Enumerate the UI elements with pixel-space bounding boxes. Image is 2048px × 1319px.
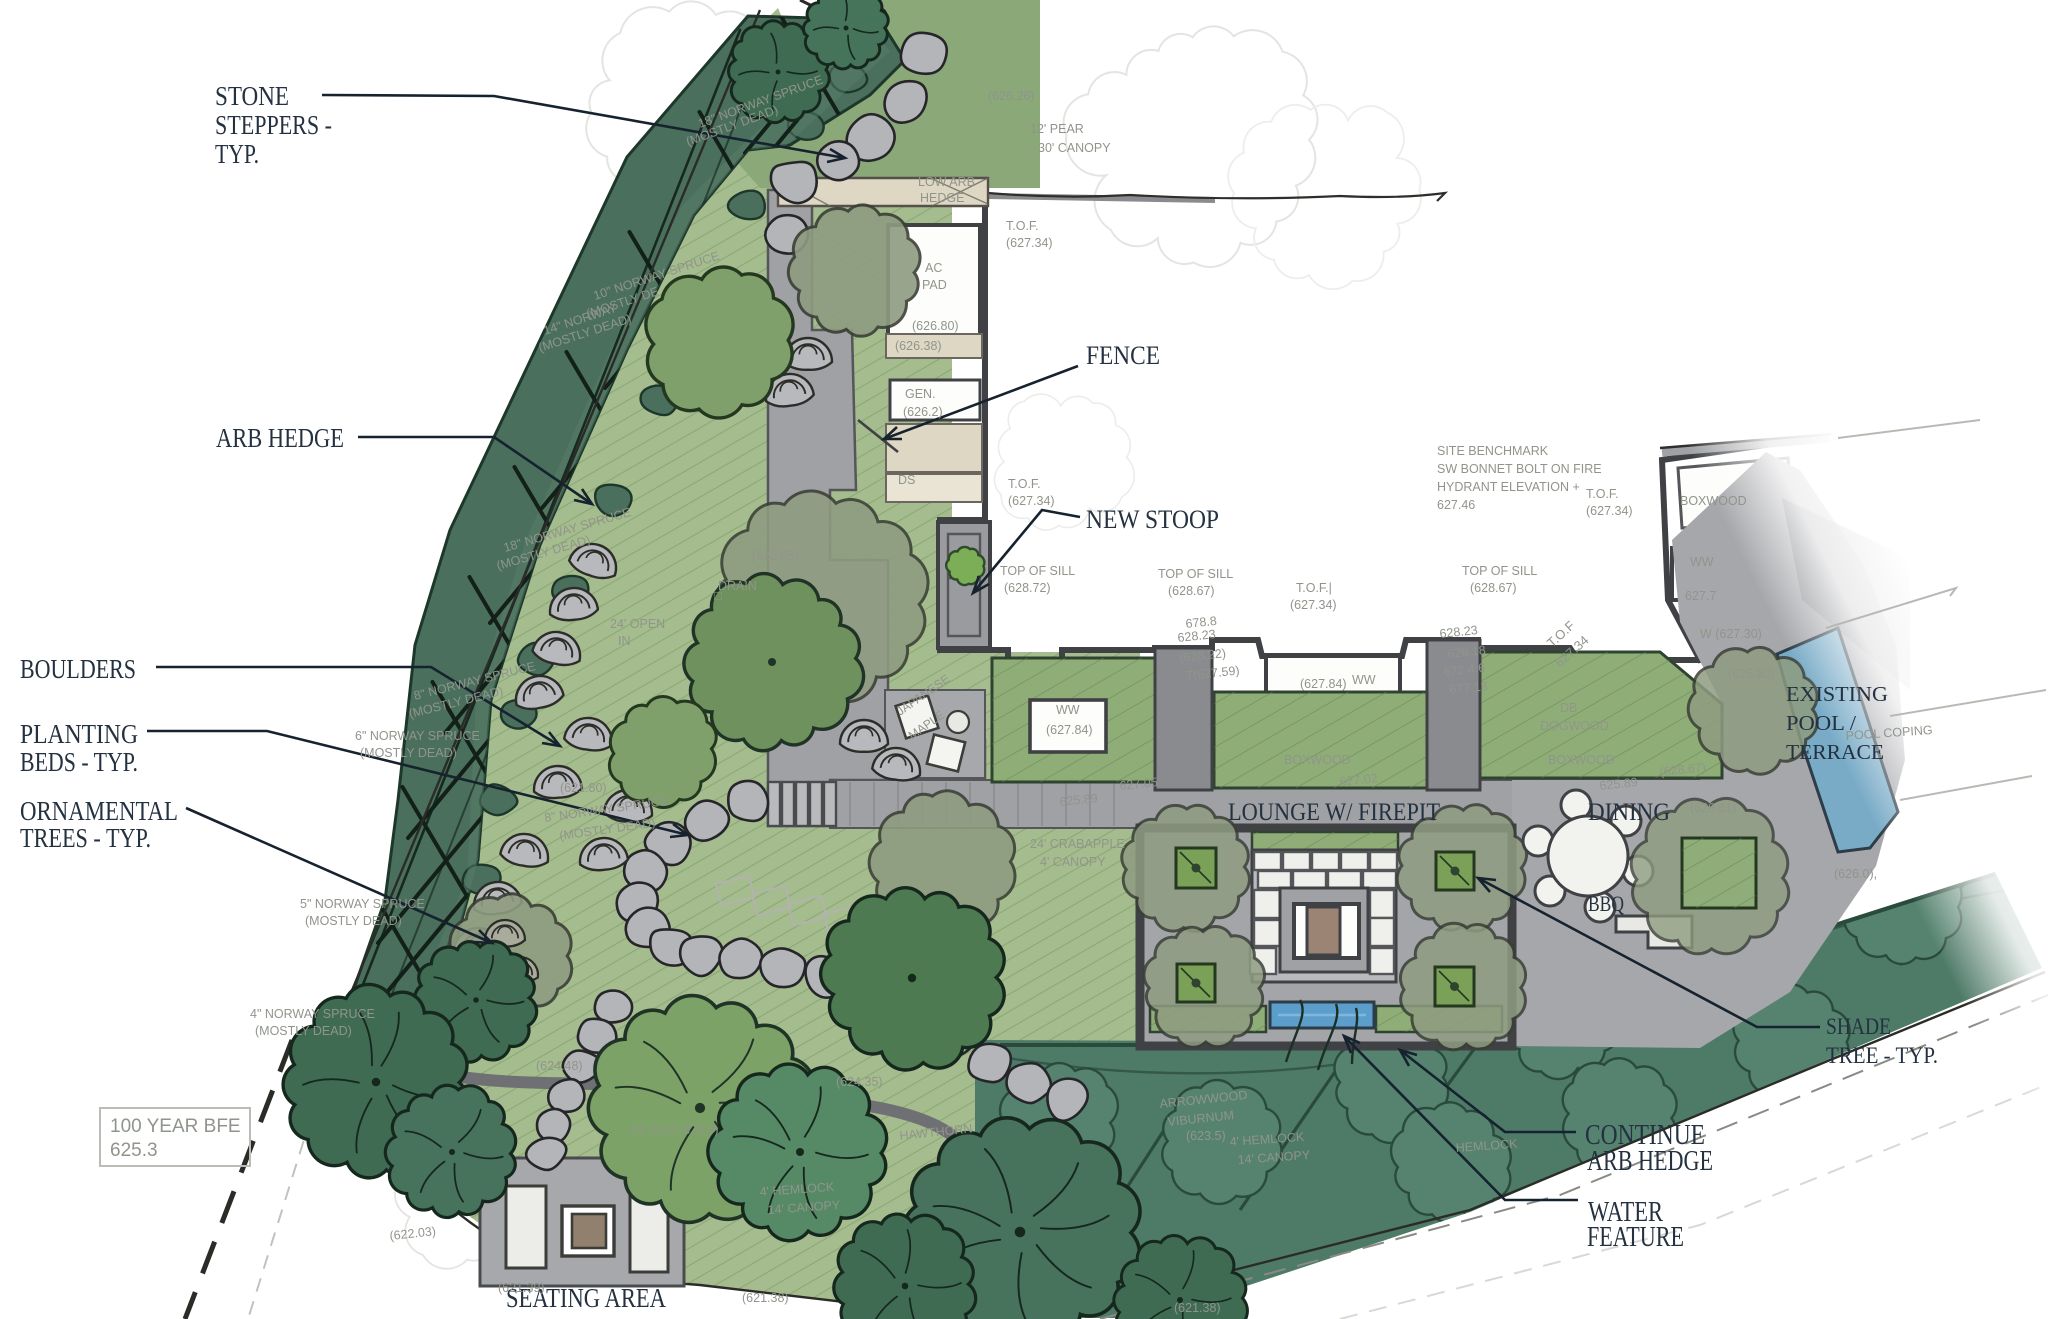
svg-text:BBQ: BBQ: [1588, 891, 1624, 916]
svg-text:SITE BENCHMARK: SITE BENCHMARK: [1437, 444, 1549, 458]
svg-text:DINING: DINING: [1588, 799, 1670, 826]
svg-text:T.O.F.: T.O.F.: [1008, 477, 1041, 491]
svg-text:(623.5): (623.5): [1186, 1129, 1226, 1143]
svg-text:TOP OF SILL: TOP OF SILL: [1462, 564, 1537, 578]
svg-text:WW: WW: [1690, 555, 1714, 569]
svg-text:TOP OF SILL: TOP OF SILL: [1158, 567, 1233, 581]
svg-text:(626.0),: (626.0),: [1834, 867, 1877, 881]
svg-text:BOULDERS: BOULDERS: [20, 654, 136, 684]
svg-text:5" NORWAY SPRUCE: 5" NORWAY SPRUCE: [300, 897, 425, 911]
svg-text:W (627.30): W (627.30): [1700, 627, 1762, 641]
svg-text:(622.05): (622.05): [752, 549, 799, 563]
svg-text:(626.2): (626.2): [903, 405, 943, 419]
svg-text:AC: AC: [925, 261, 942, 275]
svg-text:BEDS - TYP.: BEDS - TYP.: [20, 747, 138, 777]
svg-text:(626.80): (626.80): [912, 319, 959, 333]
svg-text:SHADE: SHADE: [1826, 1014, 1891, 1039]
svg-text:4" NORWAY SPRUCE: 4" NORWAY SPRUCE: [250, 1007, 375, 1021]
svg-text:625.3: 625.3: [110, 1140, 158, 1161]
svg-text:ARB HEDGE: ARB HEDGE: [216, 423, 344, 453]
svg-text:HEDGE: HEDGE: [920, 191, 964, 205]
svg-text:(628.72): (628.72): [1004, 581, 1051, 595]
svg-text:STEPPERS -: STEPPERS -: [215, 110, 332, 140]
svg-text:WW: WW: [1352, 673, 1376, 687]
svg-text:(627.84): (627.84): [1046, 723, 1093, 737]
svg-text:30' CANOPY: 30' CANOPY: [1038, 141, 1111, 155]
svg-text:BOXWOOD: BOXWOOD: [1548, 753, 1615, 767]
svg-text:(621.39): (621.39): [498, 1281, 545, 1295]
svg-text:(627.34): (627.34): [1586, 504, 1633, 518]
svg-text:(627.34): (627.34): [1290, 598, 1337, 612]
svg-text:(MOSTLY DEAD): (MOSTLY DEAD): [305, 914, 402, 928]
svg-text:IN: IN: [618, 634, 631, 648]
svg-text:LOW ARB: LOW ARB: [918, 175, 975, 189]
svg-text:(621.38): (621.38): [742, 1291, 789, 1305]
svg-text:24' OPEN: 24' OPEN: [610, 617, 665, 631]
svg-text:(627.84): (627.84): [1300, 677, 1347, 691]
svg-text:TYP.: TYP.: [215, 139, 259, 169]
svg-text:ARB HEDGE: ARB HEDGE: [1587, 1146, 1713, 1177]
svg-text:24' ELM (623.5): 24' ELM (623.5): [630, 1123, 719, 1137]
svg-text:WW: WW: [1056, 703, 1080, 717]
svg-text:(621.80): (621.80): [560, 781, 607, 795]
svg-text:DB: DB: [1560, 701, 1577, 715]
svg-text:NEW STOOP: NEW STOOP: [1086, 505, 1219, 534]
svg-text:STONE: STONE: [215, 81, 289, 111]
svg-text:□: □: [714, 588, 722, 603]
svg-text:DRAIN: DRAIN: [718, 579, 757, 593]
svg-text:TOP OF SILL: TOP OF SILL: [1000, 564, 1075, 578]
svg-text:(628.67): (628.67): [1168, 584, 1215, 598]
svg-text:T.O.F.: T.O.F.: [1006, 219, 1039, 233]
svg-text:24' CRABAPPLE: 24' CRABAPPLE: [1030, 837, 1125, 851]
svg-text:T.O.F.|: T.O.F.|: [1296, 581, 1332, 595]
svg-text:(626.38): (626.38): [895, 339, 942, 353]
svg-text:FENCE: FENCE: [1086, 341, 1160, 370]
svg-text:(MOSTLY DEAD): (MOSTLY DEAD): [255, 1024, 352, 1038]
svg-text:(625.80): (625.80): [1728, 667, 1775, 681]
svg-text:(627.34): (627.34): [1006, 236, 1053, 250]
svg-text:DS: DS: [898, 473, 915, 487]
svg-text:100 YEAR BFE: 100 YEAR BFE: [110, 1116, 241, 1137]
svg-text:PAD: PAD: [922, 278, 947, 292]
svg-text:TREES - TYP.: TREES - TYP.: [20, 823, 151, 853]
svg-text:SW BONNET BOLT ON FIRE: SW BONNET BOLT ON FIRE: [1437, 462, 1602, 476]
svg-text:ORNAMENTAL: ORNAMENTAL: [20, 796, 178, 826]
svg-text:LOUNGE W/ FIREPIT: LOUNGE W/ FIREPIT: [1228, 799, 1440, 826]
svg-text:(627.34): (627.34): [1008, 494, 1055, 508]
svg-text:HYDRANT ELEVATION +: HYDRANT ELEVATION +: [1437, 480, 1580, 494]
svg-text:(626.61): (626.61): [1690, 801, 1737, 815]
svg-text:627.7: 627.7: [1685, 589, 1716, 603]
svg-text:6" NORWAY SPRUCE: 6" NORWAY SPRUCE: [355, 729, 480, 743]
svg-text:EXISTING: EXISTING: [1786, 682, 1888, 706]
svg-text:GEN.: GEN.: [905, 387, 936, 401]
svg-text:BOXWOOD: BOXWOOD: [1680, 494, 1747, 508]
svg-text:(628.67): (628.67): [1470, 581, 1517, 595]
svg-text:(624.48): (624.48): [536, 1059, 583, 1073]
svg-text:(626.26): (626.26): [988, 89, 1035, 103]
svg-text:(621.38): (621.38): [1174, 1301, 1221, 1315]
svg-text:12' PEAR: 12' PEAR: [1030, 122, 1084, 136]
svg-text:TREE - TYP.: TREE - TYP.: [1826, 1043, 1938, 1068]
svg-text:T.O.F.: T.O.F.: [1586, 487, 1619, 501]
svg-text:BOXWOOD: BOXWOOD: [1284, 753, 1351, 767]
svg-text:DOGWOOD: DOGWOOD: [1540, 719, 1609, 733]
svg-text:TERRACE: TERRACE: [1786, 740, 1884, 764]
svg-text:PLANTING: PLANTING: [20, 719, 138, 749]
svg-text:(624.35): (624.35): [836, 1075, 883, 1089]
svg-text:(MOSTLY DEAD): (MOSTLY DEAD): [360, 746, 457, 760]
svg-text:627.46: 627.46: [1437, 498, 1475, 512]
svg-text:FEATURE: FEATURE: [1587, 1222, 1684, 1253]
svg-text:4' CANOPY: 4' CANOPY: [1040, 855, 1106, 869]
